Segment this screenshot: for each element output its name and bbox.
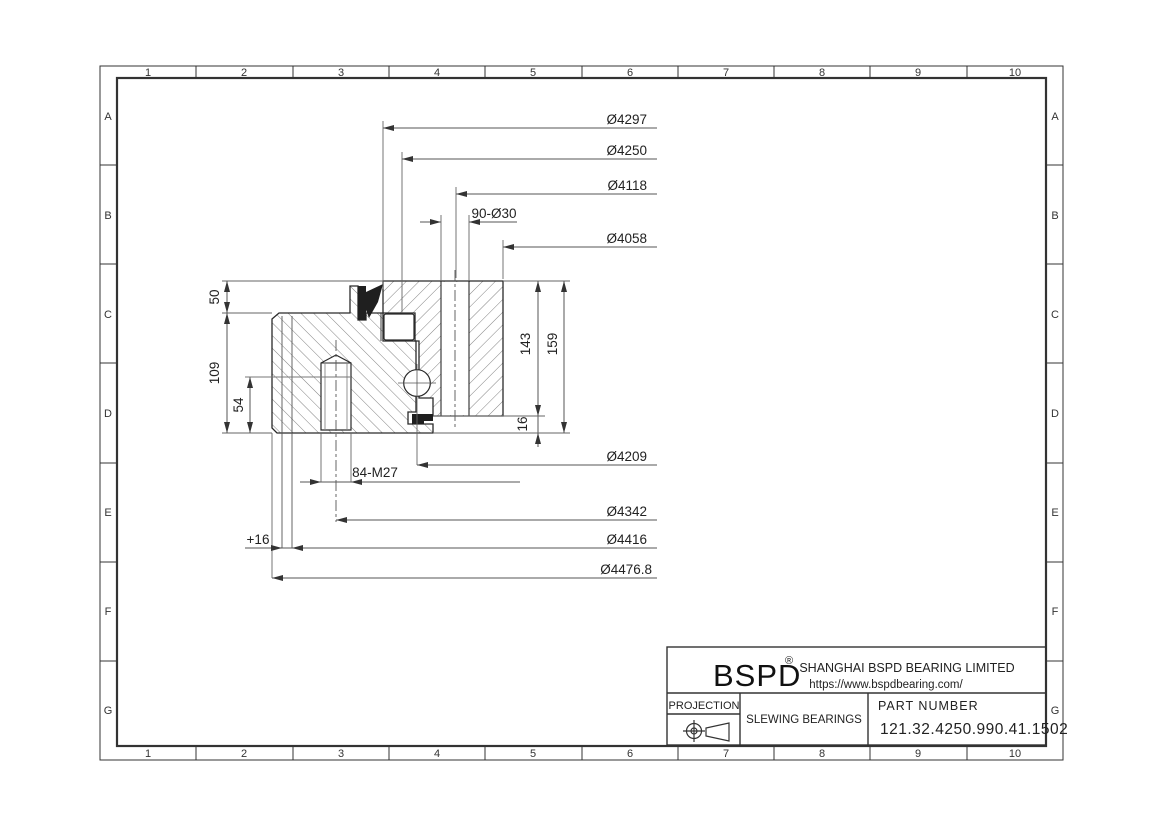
projection-label: PROJECTION bbox=[669, 700, 740, 712]
title-block: BSPD ® SHANGHAI BSPD BEARING LIMITED htt… bbox=[667, 647, 1068, 745]
grid-row-left-B: B bbox=[104, 210, 111, 222]
part-number-value: 121.32.4250.990.41.1502 bbox=[880, 721, 1068, 738]
grid-row-right-C: C bbox=[1051, 309, 1059, 321]
company-name: SHANGHAI BSPD BEARING LIMITED bbox=[799, 661, 1014, 675]
grid-col-bottom-9: 9 bbox=[915, 748, 921, 760]
company-website: https://www.bspdbearing.com/ bbox=[809, 679, 963, 691]
grid-col-bottom-6: 6 bbox=[627, 748, 633, 760]
grid-col-top-5: 5 bbox=[530, 67, 536, 79]
grid-row-right-A: A bbox=[1051, 111, 1059, 123]
dim-label-50: 50 bbox=[207, 289, 222, 304]
dim-label-16: 16 bbox=[515, 416, 530, 431]
grid-row-left-F: F bbox=[105, 606, 112, 618]
grid-col-top-7: 7 bbox=[723, 67, 729, 79]
dim-label-d4250: Ø4250 bbox=[606, 143, 647, 158]
grid-col-bottom-7: 7 bbox=[723, 748, 729, 760]
dim-label-159: 159 bbox=[545, 333, 560, 356]
bottom-seal bbox=[412, 414, 433, 424]
part-number-label: PART NUMBER bbox=[878, 699, 979, 713]
grid-col-top-3: 3 bbox=[338, 67, 344, 79]
grid-row-right-E: E bbox=[1051, 507, 1058, 519]
grid-col-top-4: 4 bbox=[434, 67, 440, 79]
dim-label-plus16: +16 bbox=[247, 532, 270, 547]
dim-label-d4476: Ø4476.8 bbox=[600, 562, 652, 577]
grid-row-left-E: E bbox=[104, 507, 111, 519]
grid-row-left-C: C bbox=[104, 309, 112, 321]
grid-col-bottom-2: 2 bbox=[241, 748, 247, 760]
registered-trademark-icon: ® bbox=[785, 655, 793, 667]
grid-row-left-A: A bbox=[104, 111, 112, 123]
dim-label-54: 54 bbox=[231, 397, 246, 413]
dim-label-d4342: Ø4342 bbox=[606, 504, 647, 519]
grid-col-bottom-4: 4 bbox=[434, 748, 440, 760]
grid-row-right-F: F bbox=[1052, 606, 1059, 618]
dim-label-d4118: Ø4118 bbox=[607, 178, 647, 193]
grid-col-bottom-3: 3 bbox=[338, 748, 344, 760]
grid-col-top-2: 2 bbox=[241, 67, 247, 79]
dim-label-d4297: Ø4297 bbox=[606, 112, 647, 127]
dim-label-84-m27: 84-M27 bbox=[352, 465, 398, 480]
drawing-sheet: 1 2 3 4 5 6 7 8 9 10 1 2 3 4 5 6 7 8 9 1… bbox=[0, 0, 1170, 827]
grid-row-left-G: G bbox=[104, 705, 113, 717]
grid-col-top-1: 1 bbox=[145, 67, 151, 79]
grid-col-top-8: 8 bbox=[819, 67, 825, 79]
grid-col-top-9: 9 bbox=[915, 67, 921, 79]
grid-col-bottom-5: 5 bbox=[530, 748, 536, 760]
grid-labels: 1 2 3 4 5 6 7 8 9 10 1 2 3 4 5 6 7 8 9 1… bbox=[104, 67, 1060, 760]
grid-col-top-10: 10 bbox=[1009, 67, 1021, 79]
dim-label-109: 109 bbox=[207, 362, 222, 385]
dim-label-90-d30: 90-Ø30 bbox=[471, 206, 516, 221]
grid-col-top-6: 6 bbox=[627, 67, 633, 79]
bearing-cross-section bbox=[272, 270, 503, 548]
dim-label-d4209: Ø4209 bbox=[606, 449, 647, 464]
grid-row-right-G: G bbox=[1051, 705, 1060, 717]
grid-row-right-D: D bbox=[1051, 408, 1059, 420]
grid-col-bottom-1: 1 bbox=[145, 748, 151, 760]
grid-col-bottom-8: 8 bbox=[819, 748, 825, 760]
dim-label-d4416: Ø4416 bbox=[606, 532, 647, 547]
first-angle-projection-icon bbox=[683, 720, 729, 742]
grid-row-left-D: D bbox=[104, 408, 112, 420]
product-type: SLEWING BEARINGS bbox=[746, 714, 862, 726]
grid-row-right-B: B bbox=[1051, 210, 1058, 222]
grid-col-bottom-10: 10 bbox=[1009, 748, 1021, 760]
loading-plug bbox=[384, 314, 414, 340]
dim-label-d4058: Ø4058 bbox=[606, 231, 647, 246]
engineering-drawing: 1 2 3 4 5 6 7 8 9 10 1 2 3 4 5 6 7 8 9 1… bbox=[0, 0, 1170, 827]
dim-label-143: 143 bbox=[518, 333, 533, 356]
